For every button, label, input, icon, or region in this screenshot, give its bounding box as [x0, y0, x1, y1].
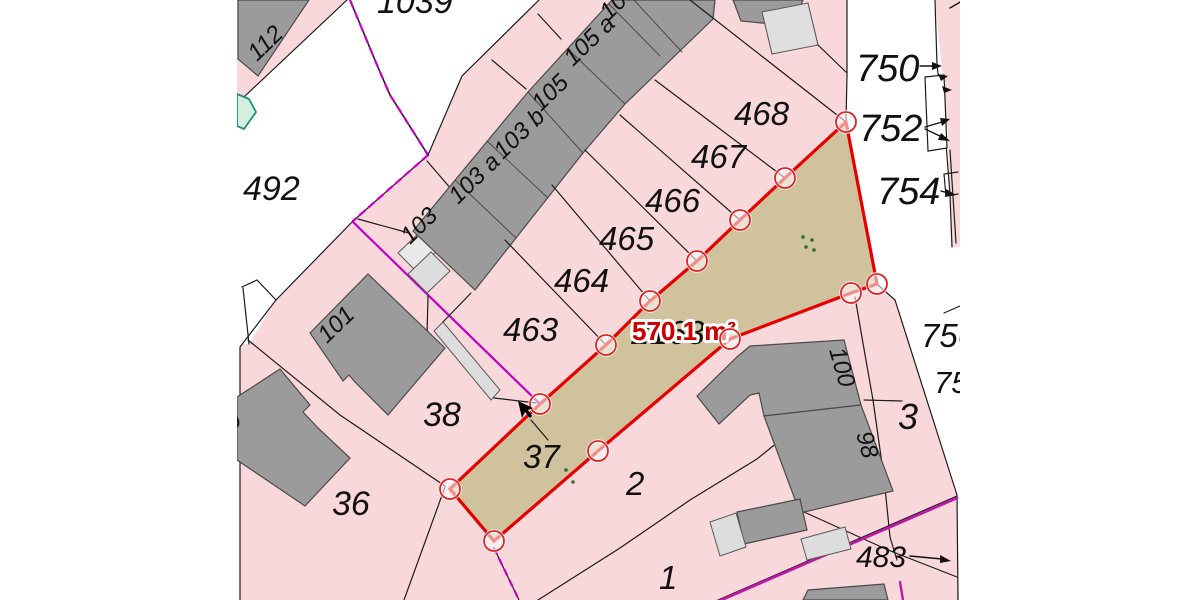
- svg-text:463: 463: [503, 311, 559, 348]
- svg-text:465: 465: [599, 220, 655, 257]
- svg-text:752: 752: [859, 108, 922, 150]
- svg-text:468: 468: [734, 95, 790, 132]
- svg-text:750: 750: [856, 48, 919, 90]
- svg-text:2: 2: [625, 465, 644, 502]
- svg-text:467: 467: [691, 138, 748, 175]
- svg-text:754: 754: [877, 171, 940, 213]
- svg-text:464: 464: [554, 262, 609, 299]
- svg-text:466: 466: [645, 182, 701, 219]
- svg-text:3: 3: [898, 396, 918, 437]
- svg-text:36: 36: [332, 485, 370, 523]
- svg-text:1039: 1039: [377, 0, 453, 21]
- svg-text:37: 37: [523, 438, 561, 475]
- svg-text:492: 492: [243, 170, 300, 208]
- svg-text:483: 483: [856, 541, 906, 574]
- svg-text:756: 756: [921, 317, 977, 354]
- svg-text:758: 758: [934, 365, 986, 400]
- svg-text:1: 1: [659, 559, 677, 596]
- svg-text:38: 38: [423, 396, 461, 434]
